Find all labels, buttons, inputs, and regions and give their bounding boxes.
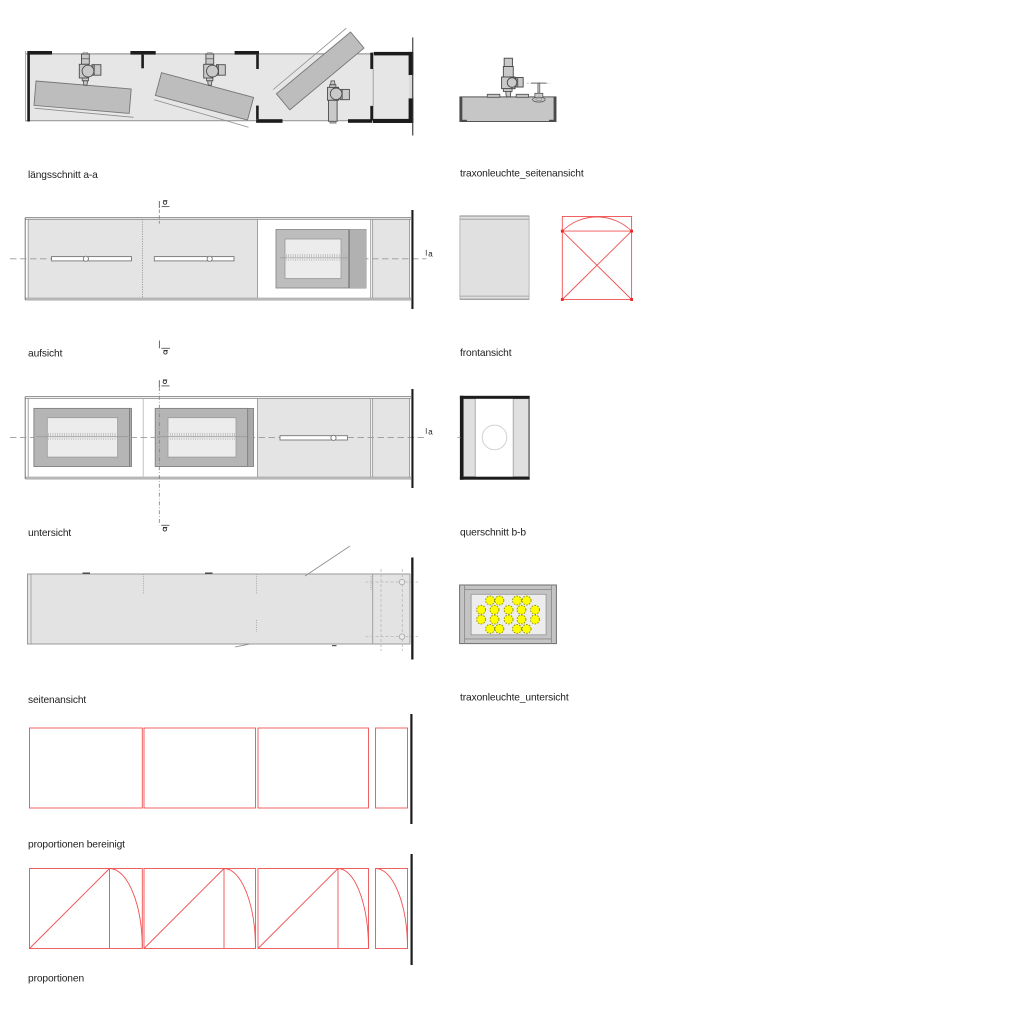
svg-text:untersicht: untersicht (28, 528, 71, 539)
svg-text:querschnitt b-b: querschnitt b-b (460, 528, 526, 539)
svg-text:proportionen: proportionen (28, 974, 84, 985)
svg-text:aufsicht: aufsicht (28, 349, 63, 360)
svg-text:a: a (428, 249, 433, 258)
svg-text:traxonleuchte_seitenansicht: traxonleuchte_seitenansicht (460, 169, 584, 180)
svg-text:proportionen bereinigt: proportionen bereinigt (28, 840, 125, 851)
svg-text:längsschnitt a-a: längsschnitt a-a (28, 170, 98, 181)
svg-text:seitenansicht: seitenansicht (28, 695, 86, 706)
svg-text:frontansicht: frontansicht (460, 348, 512, 359)
svg-text:traxonleuchte_untersicht: traxonleuchte_untersicht (460, 693, 569, 704)
svg-text:a: a (428, 428, 433, 437)
